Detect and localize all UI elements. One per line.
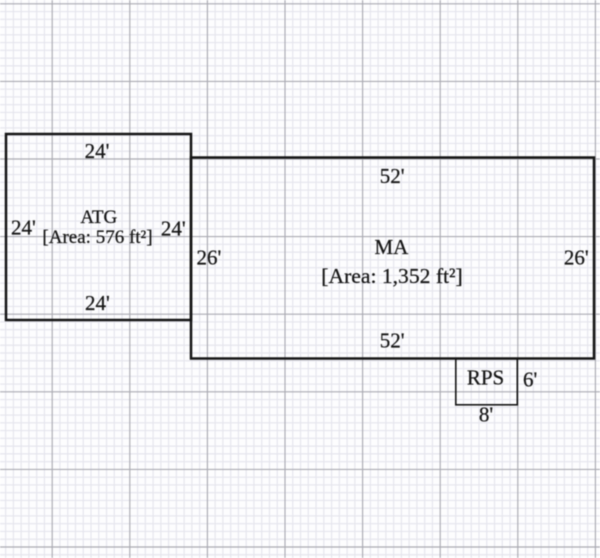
svg-text:24': 24' bbox=[161, 217, 186, 241]
svg-text:52': 52' bbox=[380, 164, 405, 188]
svg-text:MA: MA bbox=[374, 235, 409, 259]
svg-text:26': 26' bbox=[564, 246, 589, 270]
svg-text:RPS: RPS bbox=[467, 366, 504, 390]
svg-text:26': 26' bbox=[197, 246, 222, 270]
svg-text:52': 52' bbox=[380, 329, 405, 353]
svg-text:8': 8' bbox=[479, 403, 493, 427]
svg-text:6': 6' bbox=[523, 368, 537, 392]
svg-text:ATG: ATG bbox=[80, 207, 117, 228]
svg-text:24': 24' bbox=[85, 139, 110, 163]
svg-text:24': 24' bbox=[85, 291, 110, 315]
svg-text:[Area: 576 ft²]: [Area: 576 ft²] bbox=[42, 227, 152, 248]
svg-text:24': 24' bbox=[11, 216, 36, 240]
svg-text:[Area: 1,352 ft²]: [Area: 1,352 ft²] bbox=[321, 264, 462, 288]
